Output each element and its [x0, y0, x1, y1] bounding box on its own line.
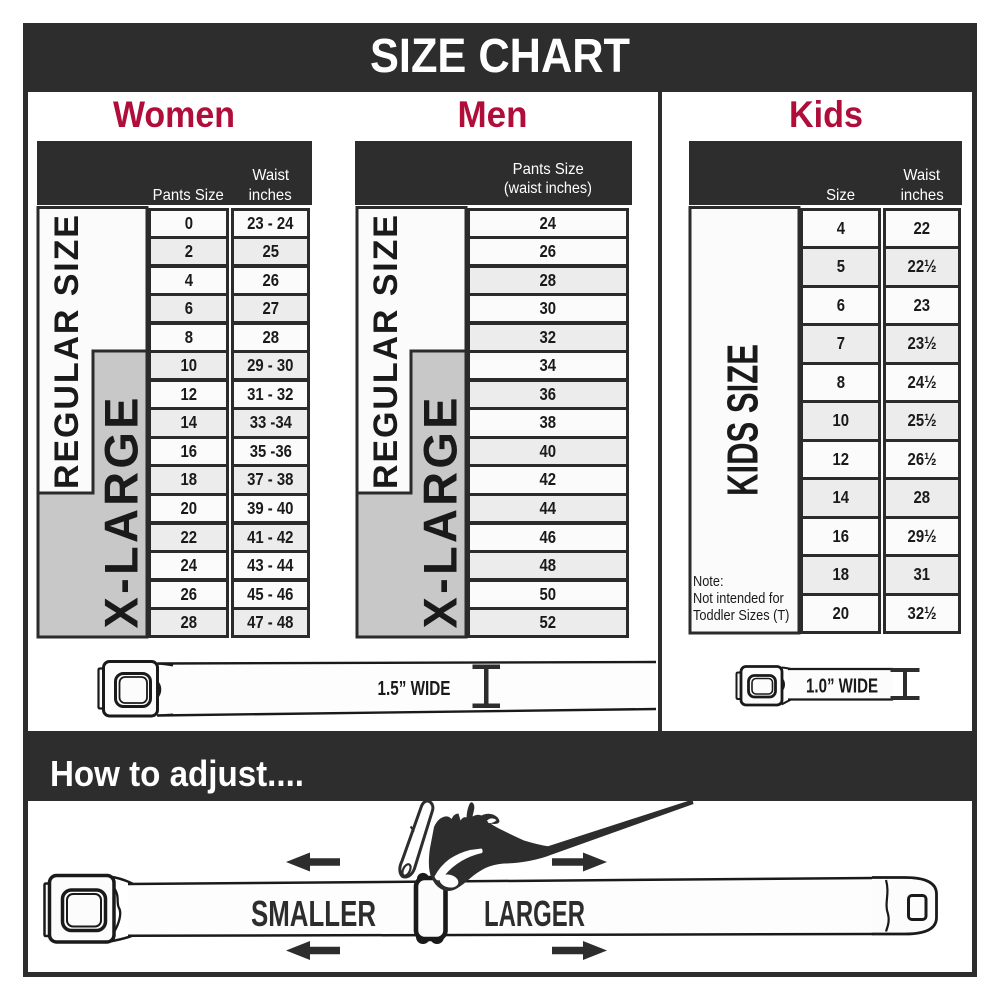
svg-text:How to adjust....: How to adjust....	[50, 753, 304, 794]
svg-text:Women: Women	[113, 94, 235, 135]
svg-text:X-LARGE: X-LARGE	[95, 398, 148, 629]
svg-text:X-LARGE: X-LARGE	[414, 398, 467, 629]
svg-text:Kids: Kids	[789, 94, 863, 135]
svg-text:KIDS SIZE: KIDS SIZE	[719, 344, 768, 496]
svg-text:SMALLER: SMALLER	[251, 893, 376, 934]
svg-text:1.5” WIDE: 1.5” WIDE	[378, 678, 451, 700]
svg-text:Men: Men	[458, 94, 528, 135]
svg-text:REGULAR SIZE: REGULAR SIZE	[367, 215, 405, 489]
svg-text:LARGER: LARGER	[484, 893, 585, 934]
svg-text:1.0” WIDE: 1.0” WIDE	[806, 676, 878, 698]
svg-text:REGULAR SIZE: REGULAR SIZE	[48, 215, 86, 489]
svg-text:SIZE CHART: SIZE CHART	[370, 30, 630, 83]
